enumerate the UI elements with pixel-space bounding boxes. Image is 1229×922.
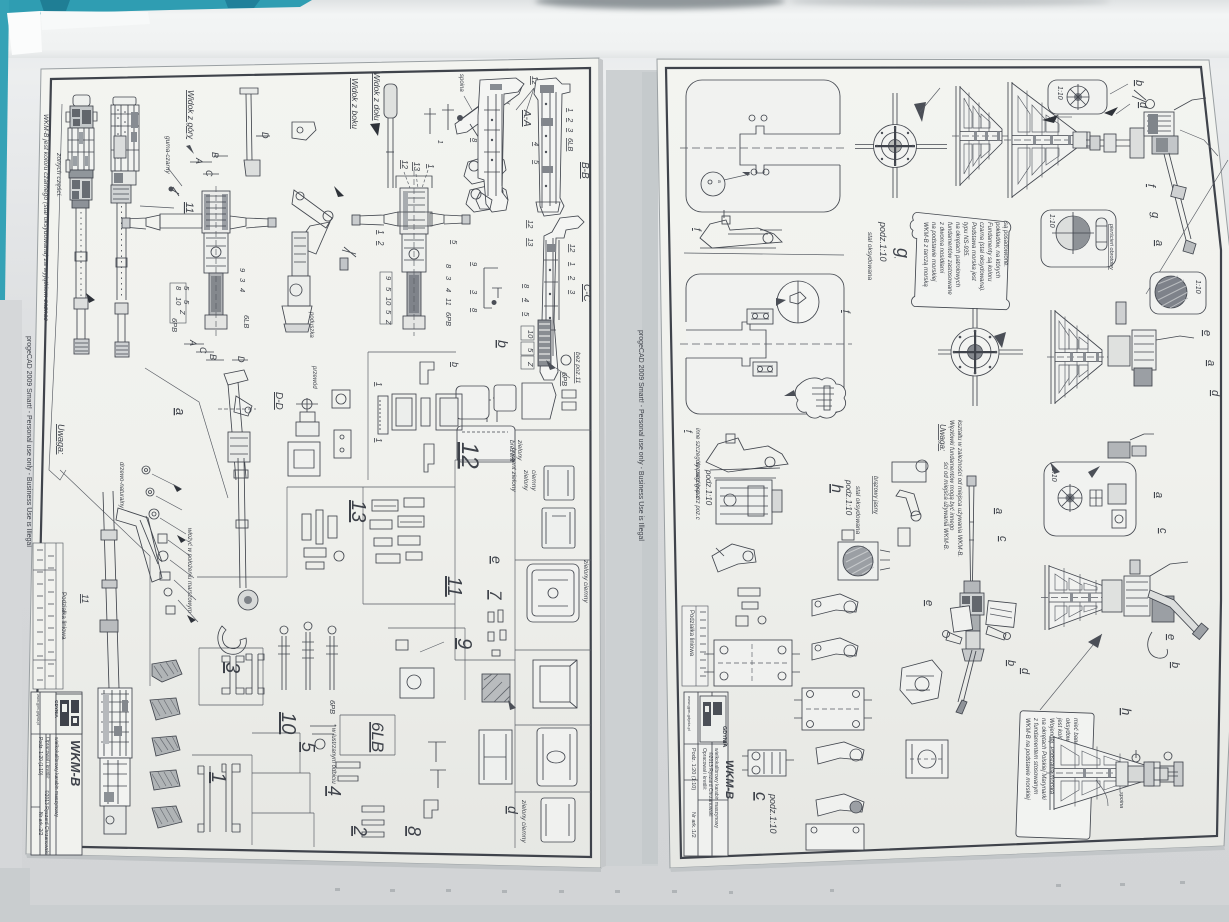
svg-text:a: a	[1153, 240, 1165, 246]
svg-text:Fundamenty są koloru: Fundamenty są koloru	[986, 222, 992, 282]
svg-text:8: 8	[404, 826, 424, 836]
svg-text:12: 12	[400, 160, 409, 169]
svg-text:Z: Z	[526, 361, 535, 367]
svg-text:na okrętach patrolowych: na okrętach patrolowych	[954, 222, 960, 288]
svg-text:2: 2	[376, 240, 385, 246]
svg-text:1: 1	[374, 438, 383, 442]
svg-text:A: A	[188, 339, 198, 346]
svg-text:1:10: 1:10	[1048, 214, 1055, 228]
svg-text:drzewo-naturalny: drzewo-naturalny	[118, 462, 124, 509]
svg-text:2: 2	[566, 117, 575, 123]
svg-text:1:10: 1:10	[1194, 280, 1201, 294]
svg-text:kształtu w zależności od miejs: kształtu w zależności od miejsca używani…	[956, 420, 962, 557]
svg-text:zonych części.: zonych części.	[55, 152, 62, 197]
svg-text:GDYNIA: GDYNIA	[721, 726, 727, 747]
svg-text:www.gpm-gdynia.pl: www.gpm-gdynia.pl	[36, 694, 40, 725]
svg-text:4: 4	[238, 288, 247, 292]
svg-text:Widok z dołu: Widok z dołu	[372, 72, 382, 121]
svg-text:d: d	[505, 806, 521, 815]
svg-text:Podstawa morska jest: Podstawa morska jest	[970, 222, 976, 281]
svg-text:z fundamentem stosowanym: z fundamentem stosowanym	[1032, 717, 1038, 794]
svg-text:Podz. 1:20 (1:10): Podz. 1:20 (1:10)	[37, 737, 43, 776]
svg-text:podz.1:10: podz.1:10	[768, 793, 778, 834]
svg-text:typu NS-935.: typu NS-935.	[962, 222, 968, 257]
svg-text:b: b	[1169, 662, 1181, 668]
svg-text:D: D	[260, 132, 270, 139]
svg-text:bez poz.11: bez poz.11	[574, 352, 581, 384]
svg-text:13: 13	[412, 162, 421, 171]
svg-text:Uwaga:: Uwaga:	[56, 424, 66, 455]
svg-text:z dwoma nosidłami: z dwoma nosidłami	[938, 221, 944, 274]
svg-text:©2013 Ryszard Chrzanowski: ©2013 Ryszard Chrzanowski	[43, 790, 50, 855]
svg-text:B: B	[210, 152, 220, 158]
svg-text:WKM-B na podstawie morskiej: WKM-B na podstawie morskiej	[1024, 718, 1030, 800]
svg-text:C: C	[204, 170, 214, 177]
svg-text:6PB: 6PB	[444, 312, 453, 326]
svg-text:Podz. 1:20 (1:10): Podz. 1:20 (1:10)	[690, 748, 696, 790]
svg-text:poduszka: poduszka	[308, 311, 314, 338]
svg-text:D: D	[236, 356, 246, 363]
svg-text:podz.1:10: podz.1:10	[844, 479, 853, 516]
svg-text:B: B	[208, 354, 218, 360]
svg-text:pokładów, na których: pokładów, na których	[994, 221, 1000, 279]
svg-text:guma-czarny: guma-czarny	[164, 136, 171, 174]
svg-text:a: a	[1205, 360, 1217, 366]
svg-text:WKM-B jest koloru czarnego (st: WKM-B jest koloru czarnego (stal oksydow…	[42, 114, 49, 322]
svg-text:6LB: 6LB	[242, 315, 251, 328]
svg-text:czarna (stal oksydowana).: czarna (stal oksydowana).	[978, 222, 984, 292]
svg-text:e: e	[1165, 634, 1177, 640]
svg-text:10: 10	[174, 297, 183, 306]
svg-text:a: a	[716, 180, 722, 183]
svg-text:B-B: B-B	[579, 162, 590, 179]
svg-text:WKM-B: WKM-B	[723, 760, 735, 799]
svg-text:a: a	[1153, 492, 1165, 498]
svg-text:Podziałka liniowa: Podziałka liniowa	[688, 610, 694, 657]
svg-text:g: g	[1149, 212, 1161, 219]
svg-text:1: 1	[376, 230, 385, 234]
svg-text:zielony: zielony	[522, 469, 529, 491]
svg-text:zielony ciemny: zielony ciemny	[520, 799, 527, 843]
svg-text:13: 13	[347, 500, 369, 522]
svg-text:progeCAD 2009 Smart! - Persona: progeCAD 2009 Smart! - Personal use only…	[637, 330, 644, 541]
svg-text:b: b	[495, 340, 511, 348]
svg-text:na okrętach Polskiej Marynarki: na okrętach Polskiej Marynarki	[1040, 718, 1046, 800]
svg-text:13: 13	[526, 238, 535, 247]
svg-text:4: 4	[444, 288, 453, 292]
svg-text:spoina: spoina	[1118, 792, 1124, 808]
svg-text:Wojennej. Podstawa morska: Wojennej. Podstawa morska	[1048, 718, 1054, 795]
svg-text:Z: Z	[178, 309, 187, 315]
svg-text:C: C	[198, 347, 208, 354]
svg-text:a: a	[993, 508, 1005, 514]
svg-text:d: d	[1019, 668, 1031, 675]
svg-text:A: A	[194, 157, 204, 164]
svg-text:Nr ark.:2/2: Nr ark.:2/2	[37, 812, 43, 836]
svg-text:na podstawie morskiej: na podstawie morskiej	[930, 222, 936, 282]
svg-text:6PB: 6PB	[328, 700, 337, 714]
svg-text:progeCAD 2009 Smart! - Persona: progeCAD 2009 Smart! - Personal use only…	[25, 336, 32, 547]
svg-text:2: 2	[350, 825, 370, 836]
svg-text:szczegóły-patrz poz.c: szczegóły-patrz poz.c	[694, 462, 700, 520]
svg-text:b: b	[1133, 80, 1145, 86]
svg-text:1: 1	[436, 140, 443, 144]
svg-text:10: 10	[277, 712, 299, 734]
svg-text:9: 9	[453, 638, 475, 649]
svg-text:11: 11	[80, 594, 90, 603]
svg-text:h: h	[828, 484, 845, 493]
svg-text:6PB: 6PB	[170, 318, 179, 332]
svg-text:c: c	[997, 536, 1009, 542]
svg-text:Nr ark.:1/2: Nr ark.:1/2	[690, 812, 696, 838]
svg-text:1: 1	[568, 262, 577, 266]
svg-text:1: 1	[426, 164, 435, 168]
svg-text:b: b	[1005, 660, 1017, 666]
svg-text:4: 4	[324, 786, 344, 796]
svg-text:12: 12	[456, 442, 483, 469]
svg-text:WKM-B: WKM-B	[68, 740, 83, 786]
svg-text:1: 1	[566, 108, 575, 112]
svg-text:11: 11	[183, 202, 195, 213]
svg-text:stal oksydowana: stal oksydowana	[854, 486, 861, 534]
svg-text:WKM-B z tarczą morską: WKM-B z tarczą morską	[922, 222, 928, 287]
svg-text:GDYNIA: GDYNIA	[54, 700, 59, 719]
svg-text:2: 2	[568, 275, 577, 281]
svg-text:d: d	[1209, 390, 1221, 397]
svg-text:b: b	[450, 362, 460, 367]
svg-text:spoina: spoina	[458, 74, 464, 92]
svg-text:d: d	[1137, 102, 1149, 109]
svg-text:a: a	[173, 408, 188, 415]
svg-text:Opracował i kreślił:: Opracował i kreślił:	[701, 748, 707, 790]
svg-text:7: 7	[486, 590, 505, 600]
svg-text:e: e	[923, 600, 935, 606]
svg-text:h: h	[1119, 708, 1134, 715]
svg-text:e: e	[1201, 330, 1213, 336]
svg-text:A-A: A-A	[521, 109, 532, 127]
svg-text:10: 10	[384, 297, 393, 306]
svg-text:brezent zielony: brezent zielony	[510, 448, 517, 492]
svg-text:1:10: 1:10	[1056, 86, 1063, 100]
svg-text:Widok z góry: Widok z góry	[186, 90, 196, 140]
svg-text:©2013 Ryszard Chrzanowski: ©2013 Ryszard Chrzanowski	[707, 752, 714, 817]
svg-text:Uwaga:: Uwaga:	[938, 424, 947, 451]
svg-text:stal oksydowana: stal oksydowana	[866, 232, 873, 280]
svg-text:* w lustrzanym odbiciu: * w lustrzanym odbiciu	[330, 724, 336, 784]
svg-text:1: 1	[207, 772, 229, 783]
svg-text:www.gpm-gdynia.pl: www.gpm-gdynia.pl	[687, 696, 692, 731]
svg-text:włożyć w położeniu marszowym: włożyć w położeniu marszowym	[186, 528, 192, 613]
svg-text:D-D: D-D	[273, 392, 284, 410]
svg-text:wielkokalibrowy karabin maszyn: wielkokalibrowy karabin maszynowy	[53, 737, 59, 818]
svg-text:6LB: 6LB	[566, 138, 575, 151]
svg-text:Podziałka liniowa: Podziałka liniowa	[60, 592, 67, 640]
svg-text:3: 3	[221, 662, 243, 673]
svg-text:C-C: C-C	[581, 284, 592, 303]
svg-text:pierścień obrotowy: pierścień obrotowy	[1108, 223, 1114, 271]
svg-text:12: 12	[526, 220, 535, 229]
svg-text:11: 11	[444, 298, 453, 306]
svg-text:10: 10	[526, 330, 535, 339]
svg-text:fundamentów zastosowane: fundamentów zastosowane	[946, 222, 952, 295]
svg-text:c: c	[1157, 528, 1169, 534]
svg-text:6LB: 6LB	[368, 722, 387, 752]
svg-text:g: g	[893, 248, 913, 258]
svg-text:przewód: przewód	[311, 365, 317, 389]
svg-text:podz.1:10: podz.1:10	[878, 221, 888, 262]
svg-text:są posadowione.: są posadowione.	[1002, 222, 1008, 267]
svg-text:11: 11	[443, 576, 465, 597]
svg-text:ści od miejsca używania WKM-B.: ści od miejsca używania WKM-B.	[942, 462, 948, 550]
svg-text:4: 4	[522, 298, 531, 302]
svg-text:1: 1	[374, 382, 383, 386]
svg-text:brązowy jasny: brązowy jasny	[872, 476, 878, 515]
svg-text:ciemny: ciemny	[530, 470, 537, 491]
svg-text:zielony ciemny: zielony ciemny	[582, 559, 589, 603]
svg-text:Widok z boku: Widok z boku	[350, 78, 360, 129]
svg-text:Opracował i kreślił:: Opracował i kreślił:	[44, 737, 50, 779]
svg-text:e: e	[489, 556, 505, 564]
svg-text:podz.1:10: podz.1:10	[704, 469, 713, 506]
svg-text:12: 12	[568, 244, 577, 253]
